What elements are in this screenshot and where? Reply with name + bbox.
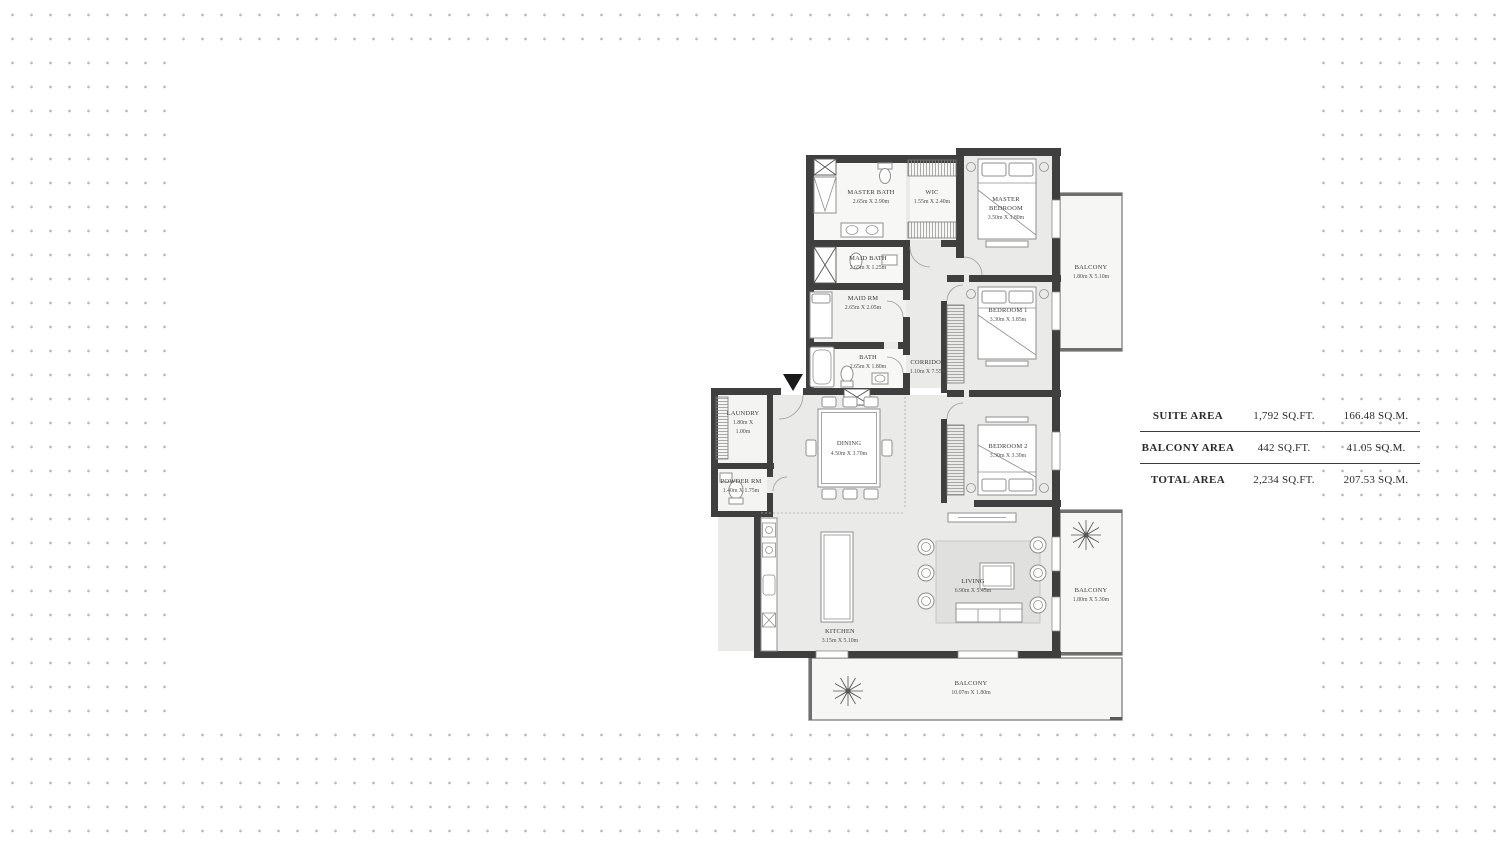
room-label-bath: BATH xyxy=(859,354,877,361)
wic-wardrobe-bottom xyxy=(908,222,956,238)
table-row: SUITE AREA 1,792 SQ.FT. 166.48 SQ.M. xyxy=(1140,400,1420,432)
drawing-canvas: MASTER BATH 2.65m X 2.90m WIC 1.55m X 2.… xyxy=(178,50,1322,730)
room-dims-bath: 2.65m X 1.80m xyxy=(850,364,887,370)
total-area-sqft: 2,234 SQ.FT. xyxy=(1236,474,1332,486)
room-dims-balcony-bottom: 10.07m X 1.80m xyxy=(951,690,991,696)
entrance-marker-triangle xyxy=(783,374,803,391)
kitchen-island xyxy=(821,532,853,622)
kitchen-counter xyxy=(761,518,777,651)
room-label-balcony-bottom: BALCONY xyxy=(955,680,988,687)
room-dims-kitchen: 3.15m X 5.10m xyxy=(822,638,859,644)
room-dims-bedroom-1: 3.30m X 3.85m xyxy=(990,317,1027,323)
room-dims-master-bath: 2.65m X 2.90m xyxy=(853,199,890,205)
balcony-area-sqm: 41.05 SQ.M. xyxy=(1332,442,1420,454)
armchair xyxy=(918,539,934,555)
room-dims-master-bedroom: 3.50m X 3.80m xyxy=(988,215,1025,221)
table-row: BALCONY AREA 442 SQ.FT. 41.05 SQ.M. xyxy=(1140,432,1420,464)
room-label-balcony-top: BALCONY xyxy=(1075,264,1108,271)
bedroom1-closet xyxy=(947,305,964,383)
room-label-powder-rm: POWDER RM xyxy=(721,478,762,485)
total-area-label: TOTAL AREA xyxy=(1140,474,1236,486)
bedroom2-closet xyxy=(947,425,964,495)
room-label-bedroom-2: BEDROOM 2 xyxy=(988,443,1027,450)
room-label-wic: WIC xyxy=(925,189,938,196)
room-dims-laundry: 1.80m X xyxy=(733,420,754,426)
room-label-kitchen: KITCHEN xyxy=(825,628,855,635)
dining-set xyxy=(806,397,892,499)
room-label-master-bath: MASTER BATH xyxy=(847,189,894,196)
room-label-master-bedroom-2: BEDROOM xyxy=(989,205,1023,212)
suite-area-label: SUITE AREA xyxy=(1140,410,1236,422)
room-label-maid-rm: MAID RM xyxy=(848,295,878,302)
armchair xyxy=(1030,597,1046,613)
room-label-bedroom-1: BEDROOM 1 xyxy=(988,307,1027,314)
balcony-bottom xyxy=(809,658,1122,720)
balcony-top-right xyxy=(1060,193,1122,351)
room-dims-maid-rm: 2.65m X 2.05m xyxy=(845,305,882,311)
room-dims-laundry-2: 1.00m xyxy=(736,429,751,435)
suite-area-sqm: 166.48 SQ.M. xyxy=(1332,410,1420,422)
room-label-living: LIVING xyxy=(961,578,985,585)
area-summary-table: SUITE AREA 1,792 SQ.FT. 166.48 SQ.M. BAL… xyxy=(1140,400,1420,495)
room-dims-maid-bath: 2.65m X 1.25m xyxy=(850,265,887,271)
room-label-dining: DINING xyxy=(837,440,861,447)
room-label-laundry: LAUNDRY xyxy=(727,410,760,417)
room-dims-dining: 4.50m X 3.70m xyxy=(831,451,868,457)
coffee-table xyxy=(980,563,1014,589)
room-label-master-bedroom: MASTER xyxy=(992,196,1020,203)
room-dims-balcony-top: 1.80m X 5.10m xyxy=(1073,274,1110,280)
laundry-units xyxy=(716,397,728,459)
room-dims-corridor: 1.10m X 7.55m xyxy=(910,369,947,375)
vanity xyxy=(841,223,883,237)
toilet-icon xyxy=(880,169,891,184)
armchair xyxy=(1030,537,1046,553)
balcony-area-sqft: 442 SQ.FT. xyxy=(1236,442,1332,454)
armchair xyxy=(1030,565,1046,581)
shower xyxy=(814,177,836,213)
sofa xyxy=(956,603,1022,622)
suite-area-sqft: 1,792 SQ.FT. xyxy=(1236,410,1332,422)
dining-table xyxy=(818,409,880,487)
room-label-corridor: CORRIDOR xyxy=(910,359,946,366)
armchair xyxy=(918,593,934,609)
room-label-maid-bath: MAID BATH xyxy=(849,255,887,262)
room-label-balcony-right: BALCONY xyxy=(1075,587,1108,594)
room-dims-powder-rm: 1.40m X 1.75m xyxy=(723,488,760,494)
room-dims-bedroom-2: 3.30m X 3.30m xyxy=(990,453,1027,459)
table-row: TOTAL AREA 2,234 SQ.FT. 207.53 SQ.M. xyxy=(1140,464,1420,495)
room-dims-living: 6.90m X 5.45m xyxy=(955,588,992,594)
room-dims-balcony-right: 1.80m X 5.30m xyxy=(1073,597,1110,603)
room-dims-wic: 1.55m X 2.40m xyxy=(914,199,951,205)
armchair xyxy=(918,565,934,581)
balcony-area-label: BALCONY AREA xyxy=(1140,442,1236,454)
wic-wardrobe-top xyxy=(908,160,956,176)
total-area-sqm: 207.53 SQ.M. xyxy=(1332,474,1420,486)
floor-plan-svg: MASTER BATH 2.65m X 2.90m WIC 1.55m X 2.… xyxy=(706,145,1126,730)
page: { "background": { "dot_color": "#b9b9b9"… xyxy=(0,0,1500,842)
